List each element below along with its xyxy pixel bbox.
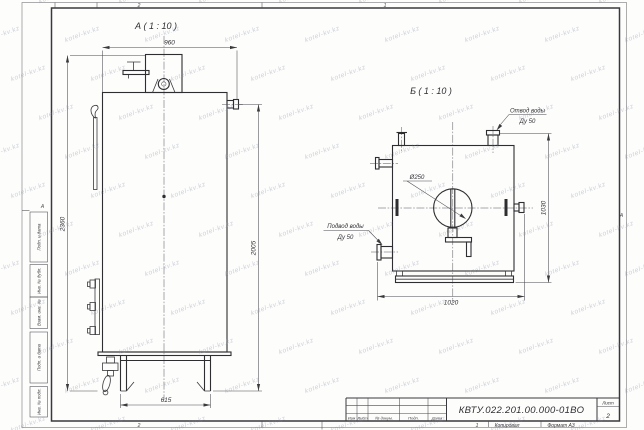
zone-number-bottom-left: 2 (137, 423, 141, 429)
fold-letter-left: А (40, 204, 45, 210)
footer-format-label: Формат А3 (547, 423, 575, 429)
inlet-label-line1: Подвод воды (327, 224, 364, 230)
drawing-canvas: 2 1 2 А А Подп. и дата Инв. № дубл. Взам… (0, 0, 644, 430)
dim-960-label: 960 (164, 40, 175, 47)
inlet-label-line2: Ду 50 (337, 235, 354, 241)
sheet-frame: 2 1 2 А А (22, 3, 627, 430)
outlet-label-line1: Отвод воды (510, 109, 546, 115)
revision-col-list: Лист (356, 416, 368, 421)
chimney-box (146, 55, 183, 93)
boiler-body-outline (103, 93, 228, 353)
margin-column: Подп. и дата Инв. № дубл. Взам. инв. № П… (30, 212, 48, 417)
view-b: Б ( 1 : 10 ) (324, 86, 552, 307)
dim-1020-label: 1020 (444, 300, 459, 307)
view-b-title: Б ( 1 : 10 ) (410, 86, 452, 96)
base-stand (98, 352, 231, 391)
zone-number-top-right: 1 (384, 3, 387, 9)
dim-615: 615 (121, 394, 211, 408)
left-slot (396, 199, 399, 216)
sheet-label: Лист (601, 401, 614, 406)
dim-960: 960 (103, 40, 238, 100)
revision-col-data: Дата (431, 416, 443, 421)
dim-2005: 2005 (213, 105, 262, 392)
right-slot (505, 199, 508, 216)
title-block: Изм Лист № докум. Подп. Дата КВТУ.022.20… (346, 398, 620, 421)
right-stub (514, 203, 524, 213)
margin-cell-label: Инв. № дубл. (37, 267, 42, 293)
outlet-label-line2: Ду 50 (519, 119, 536, 125)
rear-base (396, 271, 514, 283)
revision-col-docnum: № докум. (375, 416, 393, 421)
dim-diameter-label: Ø250 (409, 175, 425, 181)
callout-outlet: Отвод воды Ду 50 (497, 109, 547, 131)
margin-cell-label: Инв. № подл. (37, 388, 42, 415)
callout-inlet: Подвод воды Ду 50 (324, 224, 383, 245)
view-a: А ( 1 : 10 ) (60, 21, 263, 408)
document-number: КВТУ.022.201.00.000-01ВО (459, 405, 585, 416)
ash-tap (101, 357, 118, 395)
revision-col-podp: Подп. (408, 416, 419, 421)
door-hinges (88, 279, 100, 335)
damper-lever (91, 105, 98, 189)
footer-copy-number: 1 (476, 423, 479, 429)
view-a-title: А ( 1 : 10 ) (134, 21, 177, 31)
margin-cell-label: Подп. и дата (37, 223, 42, 251)
footer-copied-label: Копировал (495, 423, 520, 429)
margin-cell-label: Подп. и дата (37, 343, 42, 371)
view-b-centerlines (370, 122, 533, 302)
drawing-sheet: 2 1 2 А А Подп. и дата Инв. № дубл. Взам… (0, 0, 644, 430)
margin-cell-label: Взам. инв. № (37, 299, 42, 326)
dim-615-label: 615 (161, 397, 172, 404)
fold-letter-right: А (619, 213, 624, 219)
dim-2360-label: 2360 (60, 216, 67, 232)
sheet-number: 2 (605, 413, 610, 420)
dim-2005-label: 2005 (251, 240, 258, 256)
center-mark (162, 195, 165, 198)
zone-number-top-left: 2 (137, 3, 141, 9)
dim-1030-label: 1030 (541, 200, 548, 215)
revision-col-izm: Изм (348, 416, 356, 421)
